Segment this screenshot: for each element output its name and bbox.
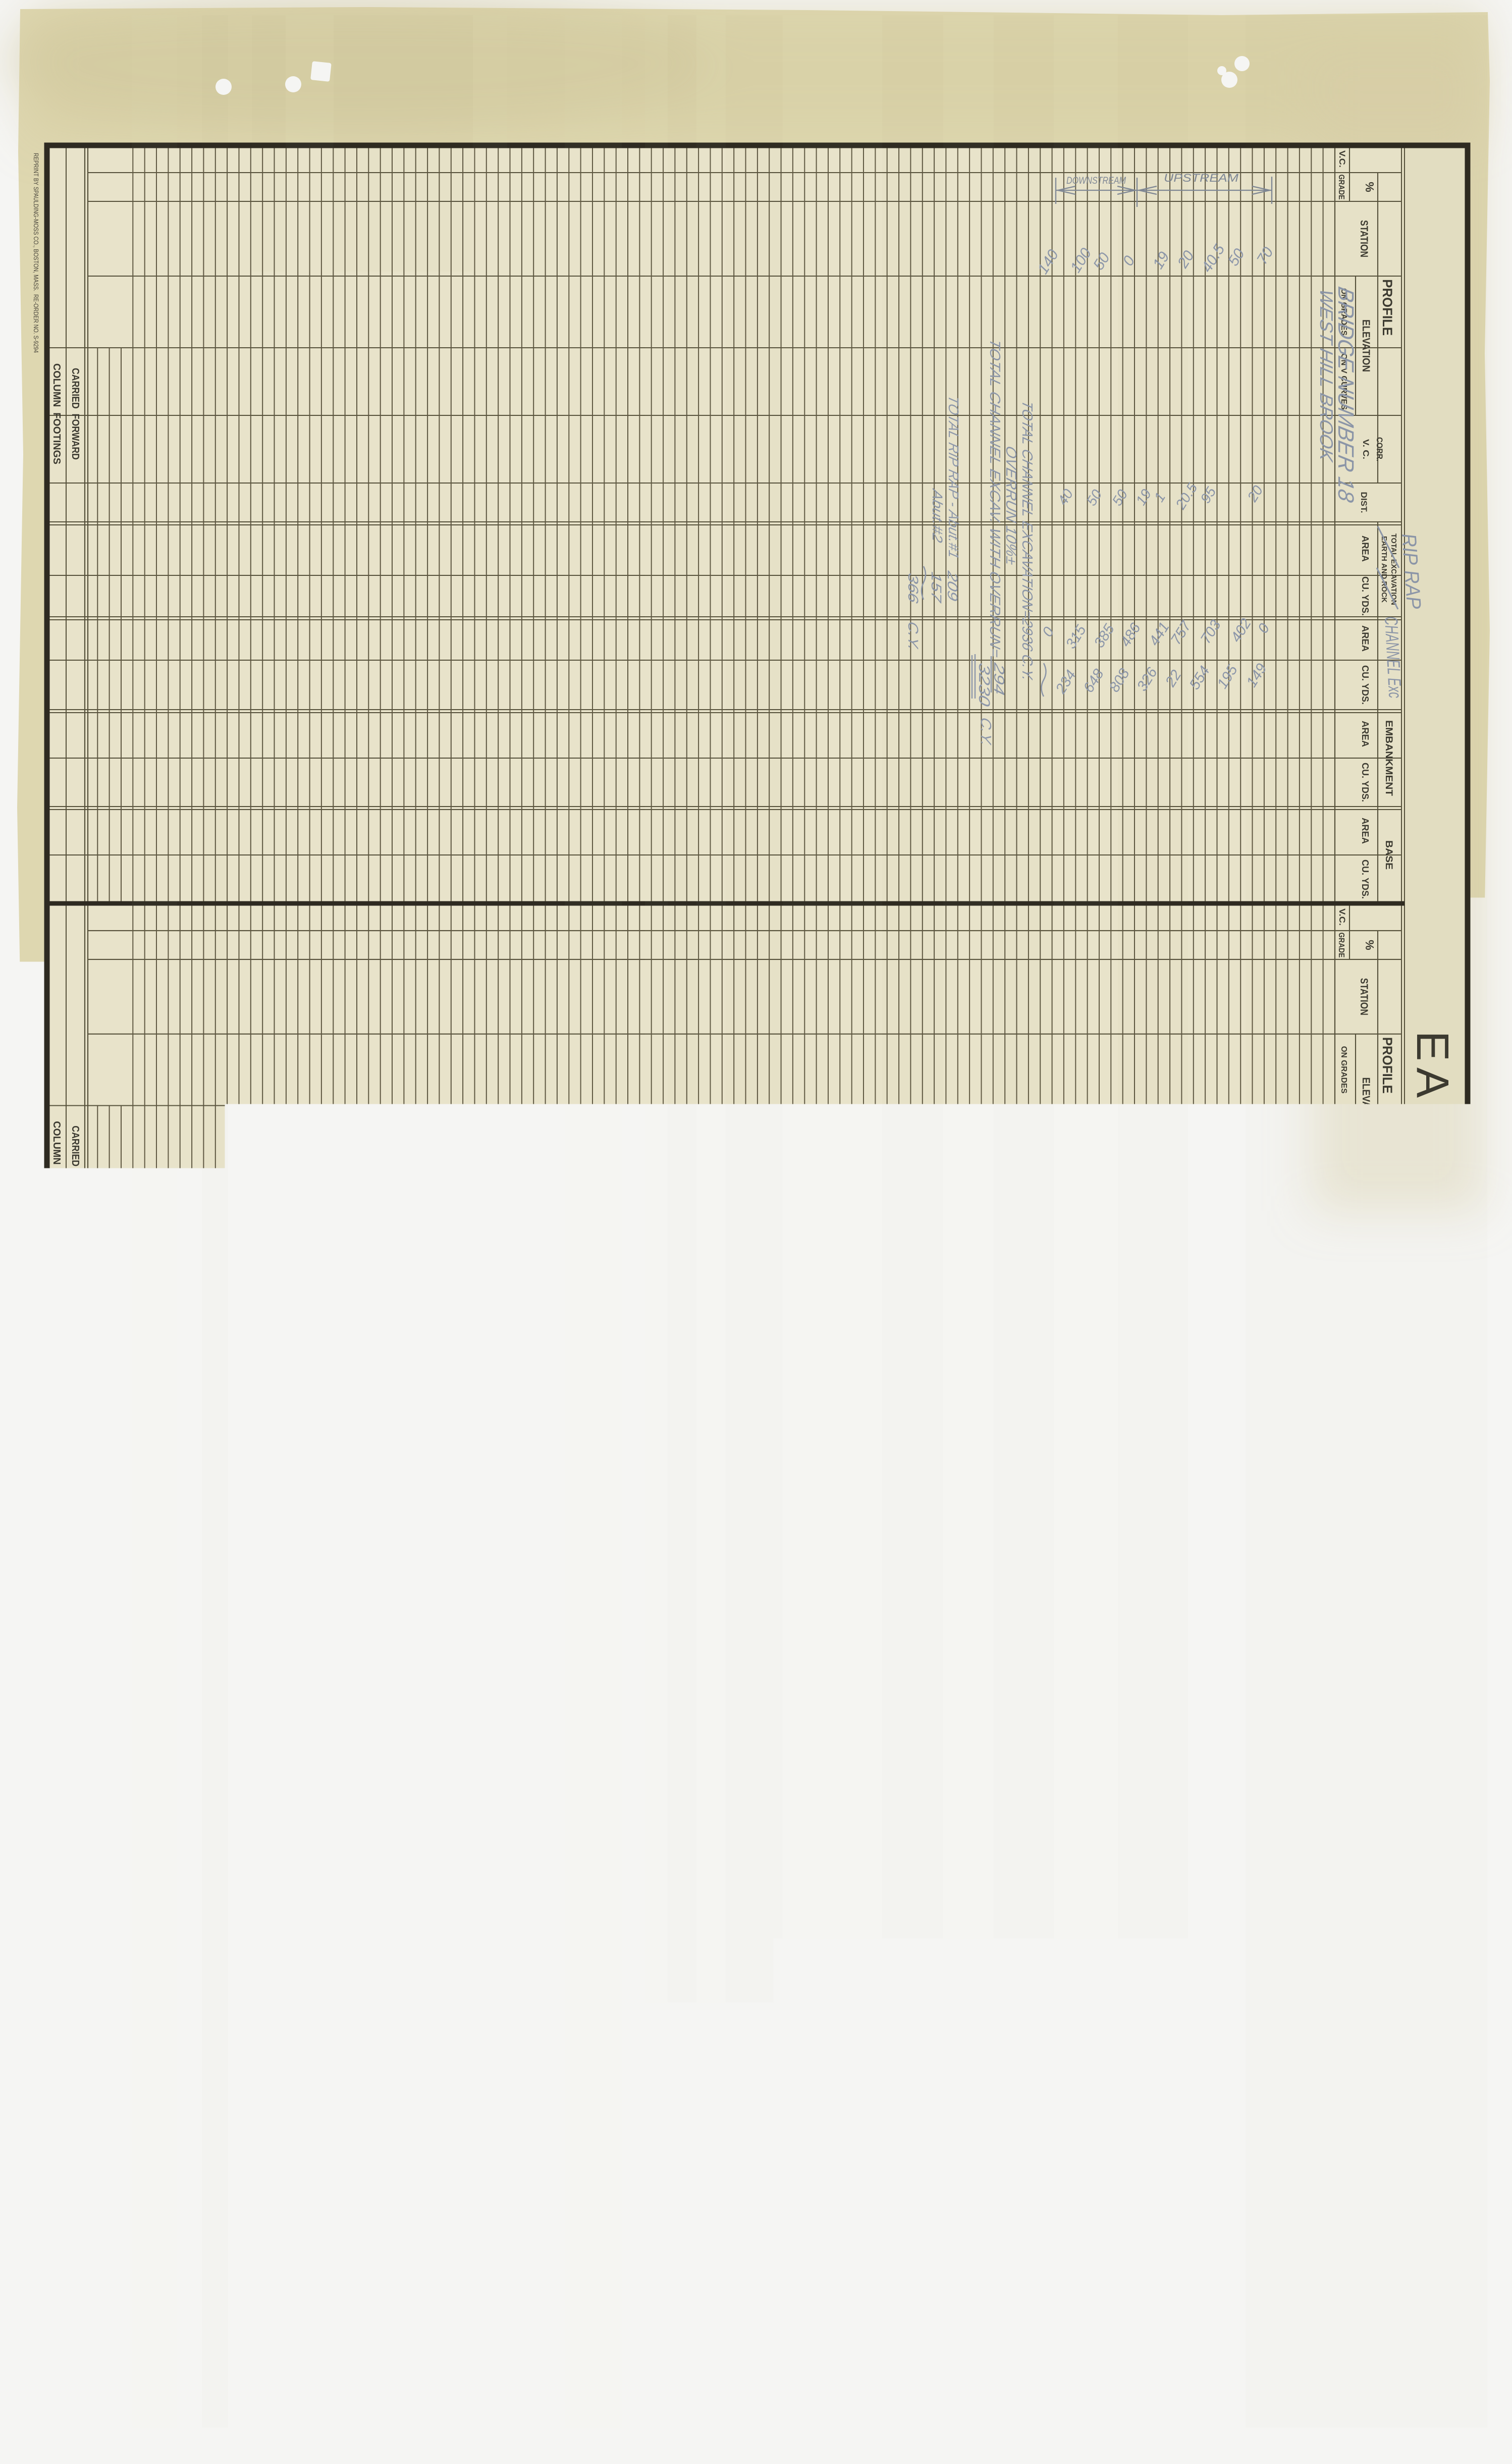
svg-text:Sheet: Sheet	[53, 2252, 67, 2285]
svg-text:COLUMN FOOTINGS: COLUMN FOOTINGS	[97, 1876, 108, 1976]
svg-text:No.: No.	[75, 2184, 88, 2204]
svg-text:of: of	[53, 2314, 67, 2326]
svg-text:Filed: Filed	[75, 2324, 89, 2352]
svg-text:CARRIED FORWARD: CARRIED FORWARD	[70, 368, 81, 460]
svg-text:PROJECT: PROJECT	[53, 1674, 83, 1790]
svg-text:CARRIED FORWARD: CARRIED FORWARD	[70, 1126, 81, 1217]
svg-text:COLUMN FOOTINGS: COLUMN FOOTINGS	[51, 363, 62, 464]
svg-text:33(2): 33(2)	[70, 2211, 91, 2256]
svg-text:Sheets: Sheets	[53, 2351, 67, 2391]
svg-text:CARRIED FORWARD: CARRIED FORWARD	[112, 1880, 123, 1972]
svg-text:COLUMN FOOTINGS: COLUMN FOOTINGS	[51, 1121, 62, 1222]
svg-text:5: 5	[89, 2168, 106, 2176]
svg-text:68: 68	[48, 2329, 70, 2350]
svg-text:45: 45	[48, 2287, 71, 2310]
svg-text:PROJ: PROJ	[92, 2131, 109, 2172]
svg-text:MONTGOMERY - Br. # 18.: MONTGOMERY - Br. # 18.	[55, 1794, 81, 2088]
svg-text:REPRINT BY SPAULDING-MOSS CO.,: REPRINT BY SPAULDING-MOSS CO., BOSTON, M…	[32, 153, 40, 353]
